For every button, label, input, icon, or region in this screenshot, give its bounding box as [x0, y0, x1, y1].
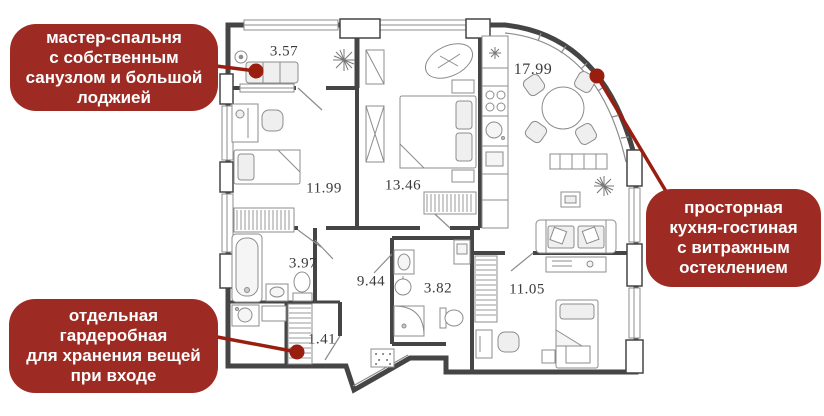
sink: [394, 250, 414, 274]
wardrobe: [366, 50, 384, 84]
callout-line: гардеробная: [60, 326, 168, 346]
kitchen-sink-cabinet: [486, 152, 503, 166]
callout-line: при входе: [71, 366, 157, 386]
closet-shelves: [234, 208, 294, 232]
callout-line: мастер-спальня: [46, 28, 182, 48]
cabinet: [454, 240, 470, 264]
callout-line: остеклением: [679, 258, 788, 278]
ceiling-light-icon: [235, 51, 247, 63]
callout-line: с витражным: [677, 238, 790, 258]
single-bed: [234, 150, 300, 184]
callout-line: отдельная: [69, 306, 158, 326]
desk: [476, 330, 492, 358]
sofa: [536, 220, 616, 253]
sink: [266, 284, 288, 301]
floorplan-page: 3.57 17.99 11.99 13.46 3.97 9.44 3.82 11…: [0, 0, 824, 416]
callout-line: просторная: [684, 198, 783, 218]
closet-shelves: [424, 192, 476, 214]
room-area-loggia: 3.57: [270, 44, 298, 61]
room-area-bedroom-right: 11.05: [509, 282, 545, 299]
bathtub: [232, 234, 262, 302]
callout-line: с собственным: [49, 48, 178, 68]
washing-machine: [232, 305, 259, 326]
connector-dot-master: [249, 64, 264, 79]
wardrobe-shelves: [475, 256, 497, 322]
doormat: [371, 349, 394, 367]
desk: [232, 104, 258, 142]
nightstand: [452, 80, 474, 93]
chair: [262, 110, 283, 131]
tv-dresser: [546, 257, 606, 272]
room-area-bathroom-main: 3.97: [289, 256, 317, 273]
double-bed: [400, 96, 476, 168]
side-table: [542, 350, 555, 363]
callout-line: кухня-гостиная: [669, 218, 797, 238]
room-area-entry-wardrobe: 1.41: [308, 332, 336, 349]
room-area-bathroom-guest: 3.82: [424, 281, 452, 298]
callout-line: санузлом и большой: [26, 68, 203, 88]
single-bed: [556, 300, 598, 368]
dining-table: [542, 87, 584, 129]
room-area-kitchen-living: 17.99: [514, 61, 553, 79]
tv-bench: [550, 154, 607, 169]
room-area-bedroom-left: 11.99: [306, 181, 342, 198]
chair: [498, 332, 519, 352]
plant-icon: [333, 49, 355, 71]
connector-dot-kitchen: [590, 69, 605, 84]
small-table: [561, 192, 580, 207]
callout-line: лоджией: [77, 88, 151, 108]
callout-line: для хранения вещей: [26, 346, 201, 366]
room-area-master-bedroom: 13.46: [385, 178, 421, 195]
wardrobe: [366, 106, 384, 162]
shower: [394, 306, 424, 336]
connector-dot-wardrobe: [290, 345, 305, 360]
plant-icon: [594, 176, 614, 196]
callout-master-bedroom: мастер-спальня с собственным санузлом и …: [10, 24, 218, 111]
callout-kitchen-living: просторная кухня-гостиная с витражным ос…: [646, 189, 821, 287]
nightstand: [452, 170, 474, 182]
kitchen-counter: [482, 36, 508, 228]
toilet: [293, 272, 312, 301]
room-area-hallway: 9.44: [357, 274, 385, 291]
callout-entry-wardrobe: отдельная гардеробная для хранения вещей…: [9, 299, 218, 393]
cabinet: [262, 306, 286, 321]
